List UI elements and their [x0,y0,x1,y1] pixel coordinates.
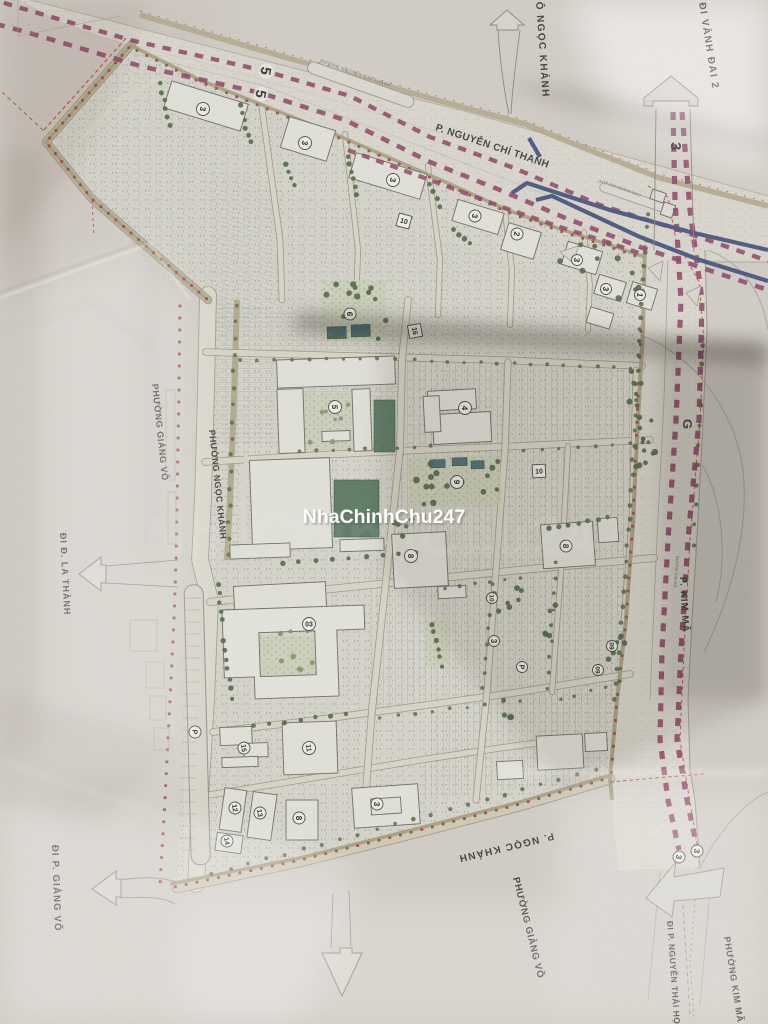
svg-text:NhaChinhChu247: NhaChinhChu247 [303,506,466,528]
